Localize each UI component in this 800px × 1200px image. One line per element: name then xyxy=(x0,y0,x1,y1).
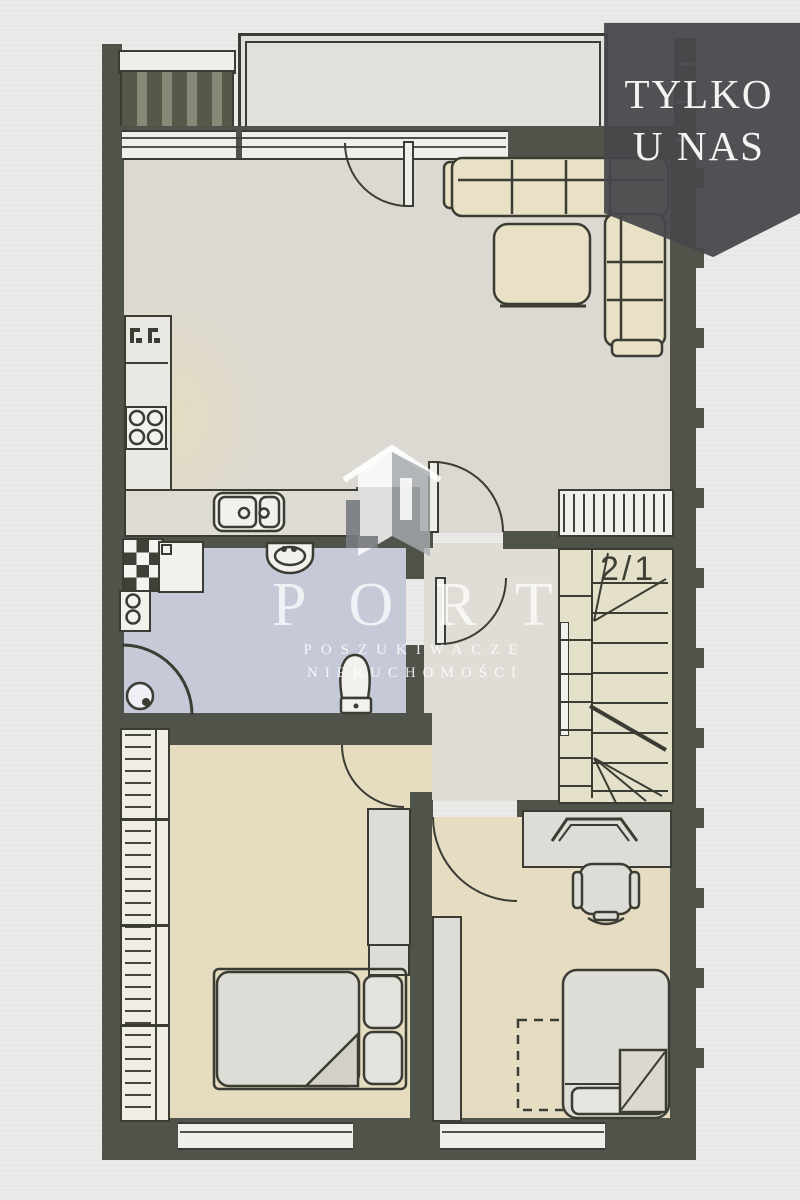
wall-notch xyxy=(694,968,704,988)
wardrobe-divider xyxy=(122,924,168,927)
watermark-tagline1: POSZUKIWACZE xyxy=(270,642,560,659)
terrace-inner-rail xyxy=(245,41,601,136)
kitchen-cabinet-column xyxy=(124,315,172,493)
desk xyxy=(522,810,672,868)
wall-notch xyxy=(694,648,704,668)
badge-line2: U NAS xyxy=(598,122,800,170)
balcony-floor-slats xyxy=(120,70,234,132)
wall-notch xyxy=(694,408,704,428)
wardrobe-divider xyxy=(122,1024,168,1027)
window-bedroom2 xyxy=(440,1122,605,1150)
window-mullion xyxy=(236,128,242,158)
wardrobe2 xyxy=(432,916,462,1122)
washer-dryer-box xyxy=(119,590,151,632)
wall-notch xyxy=(694,888,704,908)
radiator-fins xyxy=(563,494,669,532)
wall-bedrooms-divider xyxy=(410,792,432,1118)
wall-notch xyxy=(694,728,704,748)
bedside-cabinet xyxy=(367,808,411,946)
wardrobe-hatched xyxy=(120,728,170,1122)
bedroom-door-gap xyxy=(410,745,432,792)
radiator xyxy=(558,489,674,537)
badge-line1: TYLKO xyxy=(598,70,800,118)
watermark-tagline2: NIERUCHOMOŚCI xyxy=(270,665,560,682)
port-logo-icon xyxy=(332,436,452,572)
stairs-level-label: 2/1 xyxy=(600,550,656,589)
wall-notch xyxy=(694,488,704,508)
kitchen-counter xyxy=(124,489,360,537)
wardrobe-divider xyxy=(122,818,168,821)
watermark-brand: PORT xyxy=(272,570,595,641)
terrace xyxy=(238,33,608,139)
nightstand xyxy=(368,944,410,976)
washing-machine xyxy=(158,541,204,593)
wall-hall-bottom-left xyxy=(420,800,433,817)
wall-notch xyxy=(694,568,704,588)
wall-notch xyxy=(694,1048,704,1068)
window-top-band xyxy=(122,130,508,160)
wall-notch xyxy=(694,328,704,348)
window-bedroom xyxy=(178,1122,353,1150)
